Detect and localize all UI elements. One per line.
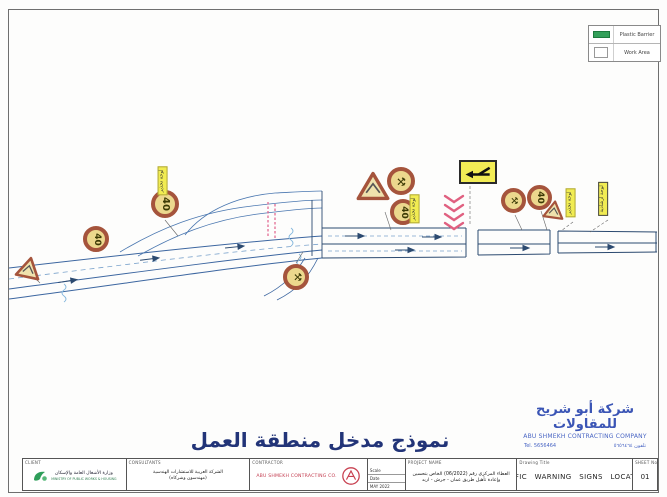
consultants-name-line2: (مهندسون وشركاه) xyxy=(169,476,207,481)
plastic-barrier-swatch xyxy=(593,31,610,38)
warning-triangle-sign xyxy=(356,171,390,201)
legend-symbol-cell xyxy=(589,26,614,43)
speed-limit-value: 40 xyxy=(399,206,408,219)
work-zone-sign: ⚒ xyxy=(501,188,526,213)
sheet-number-value: 01 xyxy=(641,473,650,481)
speed-limit-40-sign: 40 xyxy=(83,226,109,252)
consultants-name-line1: الشركة العربية للاستشارات الهندسية xyxy=(153,470,223,475)
drawing-title-label: Drawing Title xyxy=(519,460,549,465)
project-name-line2: وإعادة تأهيل طريق عمان - جرش - اربد xyxy=(422,478,501,483)
stamp-tel-en: Tel. 5656464 xyxy=(524,443,556,449)
project-name-line1: العطاء المركزي رقم (06/2022) الخاص بتحسي… xyxy=(413,472,510,477)
title-block-project-cell: PROJECT NAME العطاء المركزي رقم (06/2022… xyxy=(406,459,518,490)
stamp-company-name-ar: شركة أبو شريح للمقاولات xyxy=(518,402,652,432)
title-block-client-cell: CLIENT وزارة الأشغال العامة والإسكان MIN… xyxy=(23,459,127,490)
men-at-work-icon: ⚒ xyxy=(291,273,301,282)
stamp-tel-ar: تلفون ٥٦٥٦٤٦٤ xyxy=(614,443,646,449)
stamp-telephone-row: Tel. 5656464 تلفون ٥٦٥٦٤٦٤ xyxy=(518,443,652,449)
warning-triangle-sign xyxy=(542,199,566,221)
drawing-title: TRAFFIC WARNING SIGNS LOCATIONS xyxy=(517,473,633,481)
legend-label: Plastic Barrier xyxy=(614,32,660,38)
client-ministry-logo xyxy=(32,469,48,483)
work-area-swatch xyxy=(594,47,608,58)
sign-tag: لوحة تحذير xyxy=(158,166,168,195)
project-name-label: PROJECT NAME xyxy=(408,460,442,465)
date-row: Date xyxy=(368,474,405,482)
speed-limit-value: 40 xyxy=(160,197,170,211)
client-content: وزارة الأشغال العامة والإسكان MINISTRY O… xyxy=(32,469,116,483)
contractor-label: CONTRACTOR xyxy=(252,460,283,465)
contractor-name: ABU SHMEKH CONTRACTING CO. xyxy=(256,474,337,479)
consultants-label: CONSULTANTS xyxy=(129,460,161,465)
client-text: وزارة الأشغال العامة والإسكان MINISTRY O… xyxy=(51,471,116,481)
client-name-en: MINISTRY OF PUBLIC WORKS & HOUSING xyxy=(51,477,116,481)
client-label: CLIENT xyxy=(25,460,41,465)
title-block-contractor-cell: CONTRACTOR ABU SHMEKH CONTRACTING CO. xyxy=(250,459,368,490)
contractor-logo xyxy=(341,466,361,486)
detour-arrow-sign xyxy=(459,160,497,184)
contractor-stamp: شركة أبو شريح للمقاولات ABU SHMEKH CONTR… xyxy=(518,402,652,449)
title-block-drawing-title-cell: Drawing Title TRAFFIC WARNING SIGNS LOCA… xyxy=(517,459,633,490)
sign-tag-boxed: لوحة ارشادية xyxy=(598,182,608,216)
legend-symbol-cell xyxy=(589,44,614,61)
men-at-work-icon: ⚒ xyxy=(396,176,407,186)
lane-shift-arrow-icon xyxy=(461,162,495,182)
title-block-consultants-cell: CONSULTANTS الشركة العربية للاستشارات ال… xyxy=(127,459,251,490)
stamp-company-name-en: ABU SHMEKH CONTRACTING COMPANY xyxy=(518,433,652,440)
men-at-work-icon: ⚒ xyxy=(509,196,518,204)
sheet-title-arabic: نموذج مدخل منطقة العمل xyxy=(150,428,490,452)
title-block: CLIENT وزارة الأشغال العامة والإسكان MIN… xyxy=(22,458,658,491)
legend: Plastic Barrier Work Area xyxy=(588,25,661,62)
sign-tag: لوحة تحذير xyxy=(566,188,576,217)
work-zone-sign: ⚒ xyxy=(283,264,309,290)
speed-limit-value: 40 xyxy=(535,191,544,204)
scale-date-rows: Scale Date MAY 2022 xyxy=(368,459,405,490)
legend-row-work-area: Work Area xyxy=(589,44,660,61)
work-zone-sign: ⚒ xyxy=(387,167,415,195)
legend-row-plastic-barrier: Plastic Barrier xyxy=(589,26,660,44)
client-name-ar: وزارة الأشغال العامة والإسكان xyxy=(55,471,113,476)
sheet-number-label: SHEET No. xyxy=(635,460,657,465)
contractor-content: ABU SHMEKH CONTRACTING CO. xyxy=(256,466,361,486)
speed-limit-value: 40 xyxy=(92,233,101,246)
scale-row: Scale xyxy=(368,467,405,474)
sign-tag: لوحة تحذير xyxy=(410,194,420,223)
title-block-sheet-cell: SHEET No. 01 xyxy=(633,459,657,490)
legend-label: Work Area xyxy=(614,50,660,56)
date-value: MAY 2022 xyxy=(368,482,405,490)
drawing-sheet: Plastic Barrier Work Area 40 40 ⚒ ⚒ 40 ⚒… xyxy=(0,0,667,497)
title-block-scale-date-cell: Scale Date MAY 2022 xyxy=(368,459,406,490)
